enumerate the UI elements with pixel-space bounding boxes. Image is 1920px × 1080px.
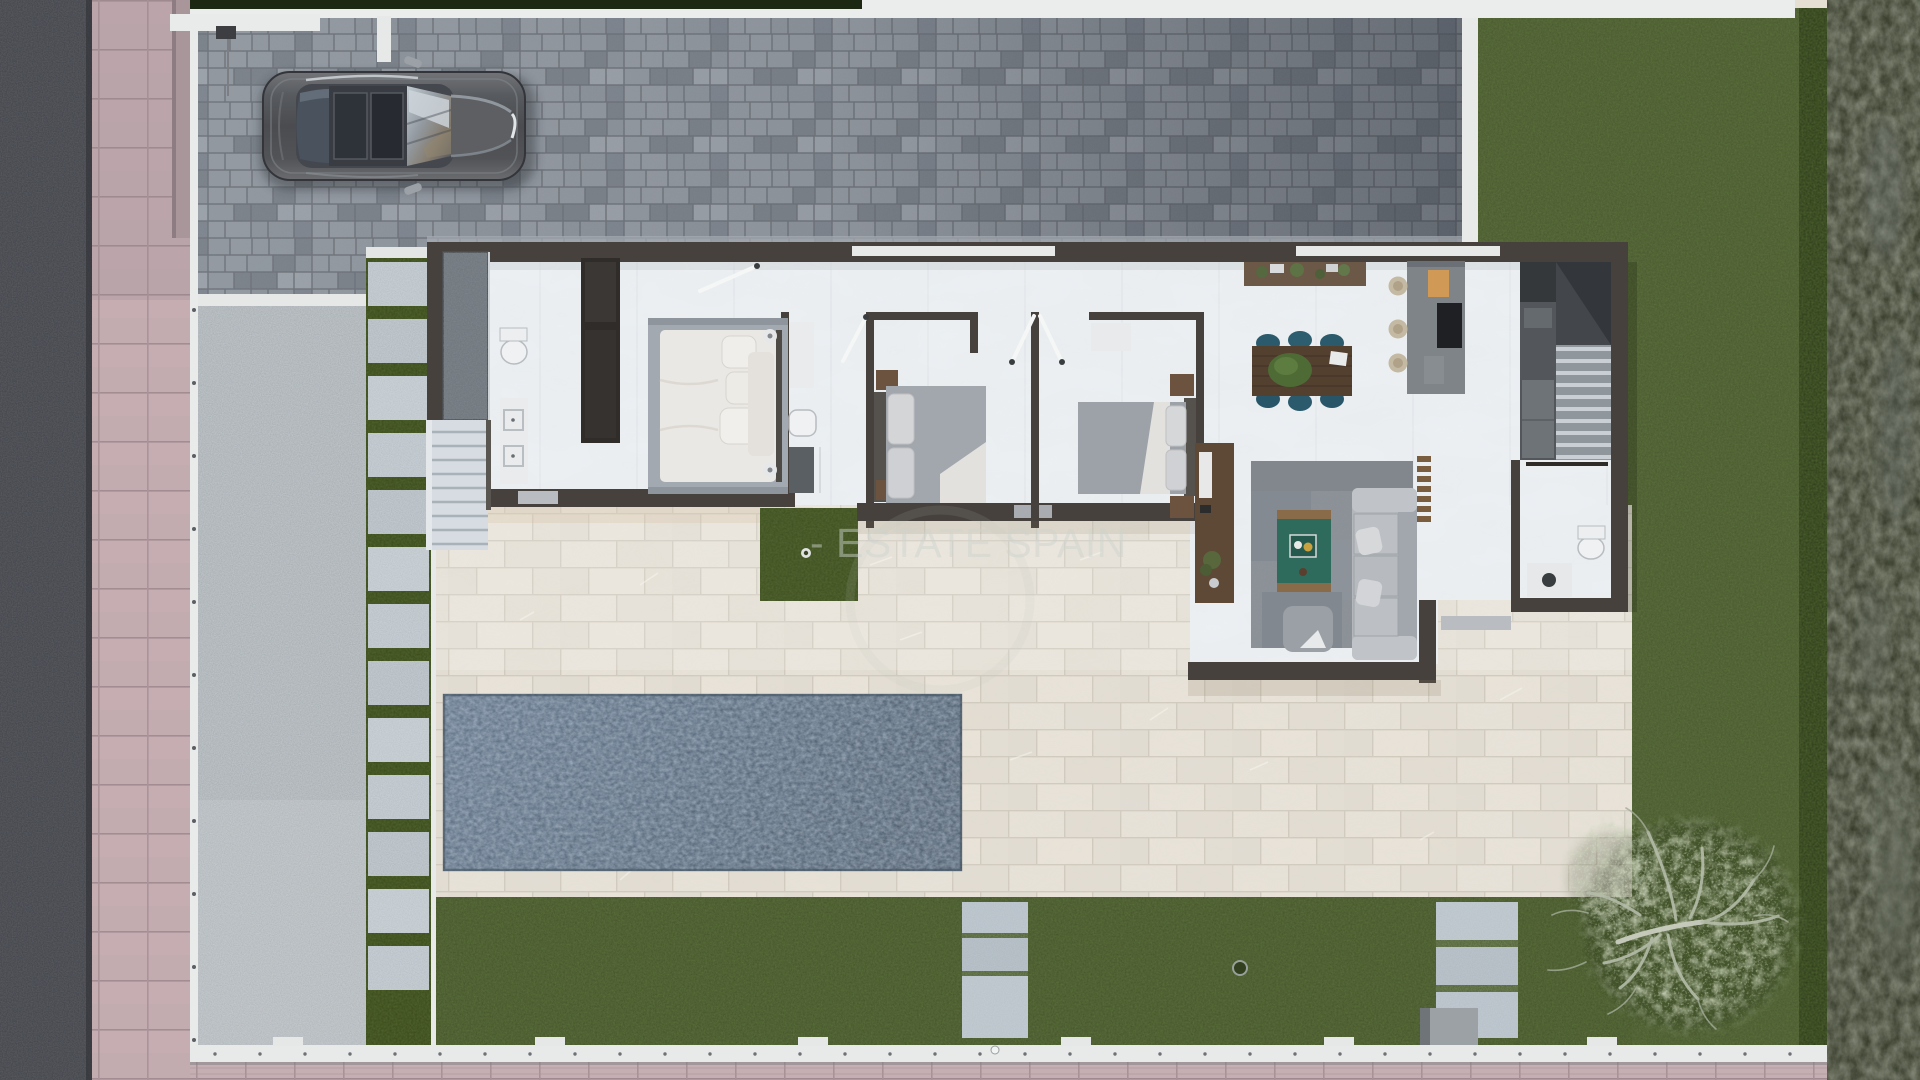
svg-text:- ESTATE SPAIN: - ESTATE SPAIN	[810, 520, 1127, 566]
